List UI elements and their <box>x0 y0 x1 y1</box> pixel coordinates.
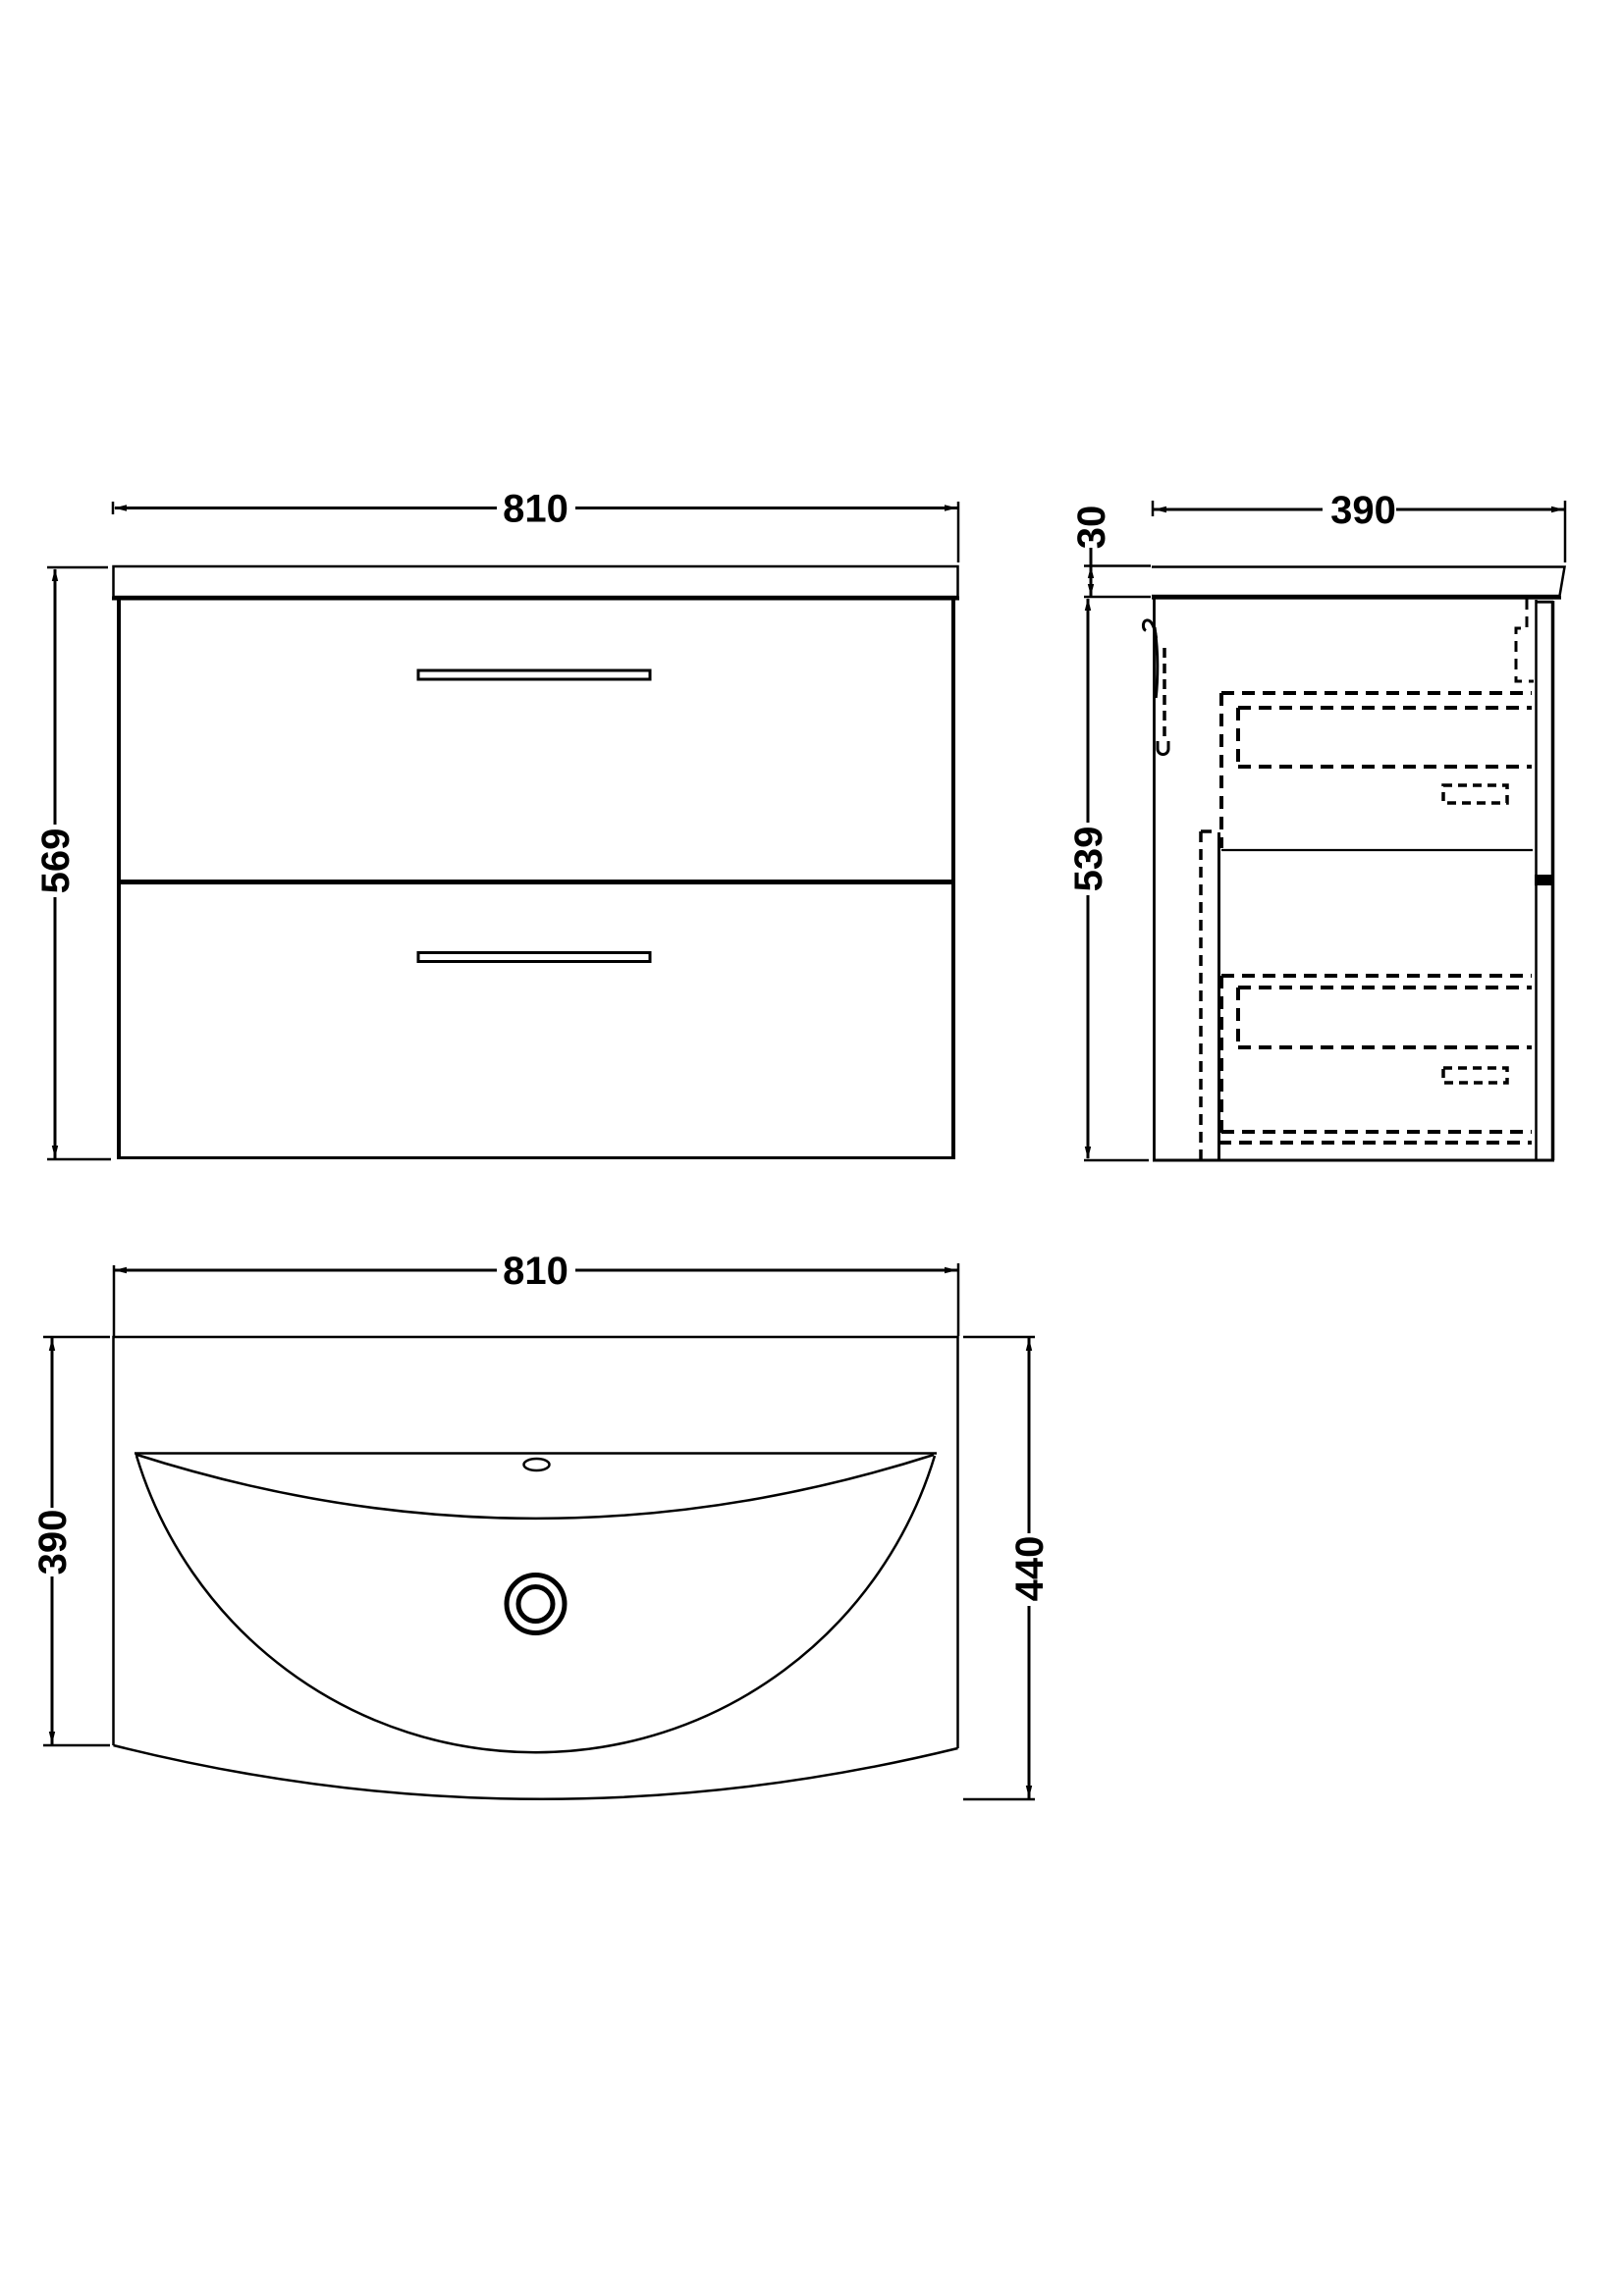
svg-text:569: 569 <box>34 828 78 894</box>
svg-text:390: 390 <box>31 1510 75 1575</box>
svg-text:440: 440 <box>1008 1536 1052 1602</box>
svg-text:30: 30 <box>1070 506 1113 550</box>
svg-text:539: 539 <box>1067 827 1110 892</box>
svg-text:390: 390 <box>1330 489 1396 532</box>
svg-text:810: 810 <box>503 488 568 531</box>
svg-text:810: 810 <box>503 1250 568 1293</box>
